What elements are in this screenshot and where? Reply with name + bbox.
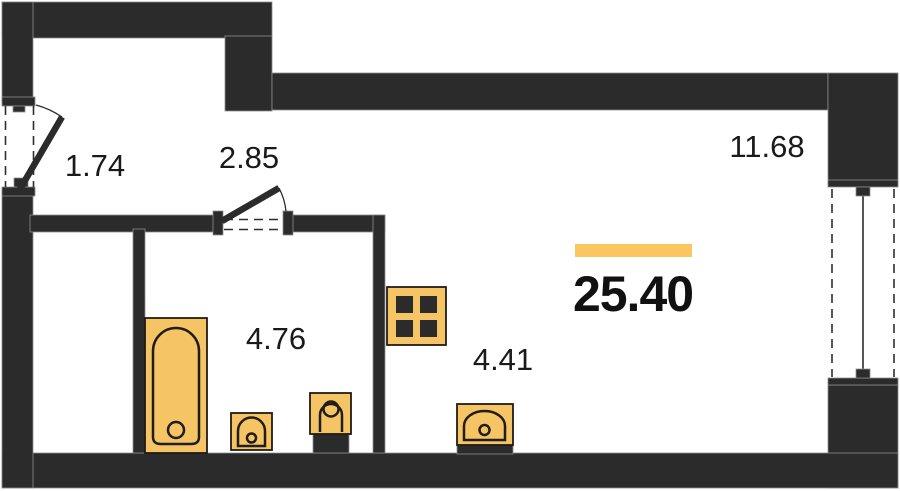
stove-burner-3 xyxy=(396,320,413,337)
entry-door-lintel-bottom xyxy=(2,187,35,196)
window-icon xyxy=(828,180,898,385)
wall-hall-left-segment xyxy=(30,215,215,232)
window-mullion-cap-top xyxy=(856,187,870,196)
wall-bottom xyxy=(2,453,898,488)
wall-top-step-block xyxy=(225,36,272,111)
total-area-highlight-bar xyxy=(575,244,692,257)
wall-top-right-band xyxy=(272,73,828,110)
entry-door-leaf xyxy=(20,117,62,189)
room-label-living: 11.68 xyxy=(729,129,804,164)
stove-burner-1 xyxy=(396,296,413,313)
wall-left-upper xyxy=(2,2,33,103)
interior-door-swing-arc xyxy=(279,188,286,211)
stove-icon xyxy=(387,287,446,345)
entry-door-swing-arc xyxy=(36,105,62,117)
kitchen-sink-icon xyxy=(457,404,513,454)
window-sill-bottom xyxy=(828,378,898,385)
wall-top-left-band xyxy=(2,2,272,38)
entry-door-stop-top xyxy=(13,106,25,112)
bathtub-body xyxy=(145,318,207,453)
room-label-entry: 1.74 xyxy=(65,148,125,183)
room-label-bathroom: 4.76 xyxy=(246,321,306,356)
entry-door-lintel-top xyxy=(2,97,35,106)
washbasin-icon xyxy=(310,393,351,453)
wall-bathroom-right xyxy=(373,215,385,453)
wall-bathroom-left xyxy=(133,229,145,453)
toilet-icon xyxy=(231,413,272,450)
window-sill-top xyxy=(828,180,898,187)
stove-burner-4 xyxy=(420,320,437,337)
wall-hall-right-segment xyxy=(291,215,385,232)
interior-door-post-right xyxy=(283,211,293,235)
room-label-kitchen: 4.41 xyxy=(473,342,533,377)
floor-plan-canvas: 1.74 2.85 4.76 4.41 11.68 25.40 xyxy=(0,0,900,491)
entry-door-icon xyxy=(2,97,62,196)
stove-body xyxy=(387,287,446,345)
room-label-corridor: 2.85 xyxy=(219,140,279,175)
total-area-label: 25.40 xyxy=(573,266,693,322)
window-mullion-cap-bottom xyxy=(856,369,870,378)
wall-right-upper xyxy=(828,73,898,185)
interior-door-leaf xyxy=(222,188,279,221)
wall-left-lower xyxy=(2,192,33,488)
washbasin-body xyxy=(310,393,351,434)
stove-burner-2 xyxy=(420,296,437,313)
interior-door-post-left xyxy=(213,211,223,235)
floor-plan: 1.74 2.85 4.76 4.41 11.68 25.40 xyxy=(0,0,900,491)
bathtub-icon xyxy=(145,318,207,453)
interior-door-icon xyxy=(213,188,293,235)
